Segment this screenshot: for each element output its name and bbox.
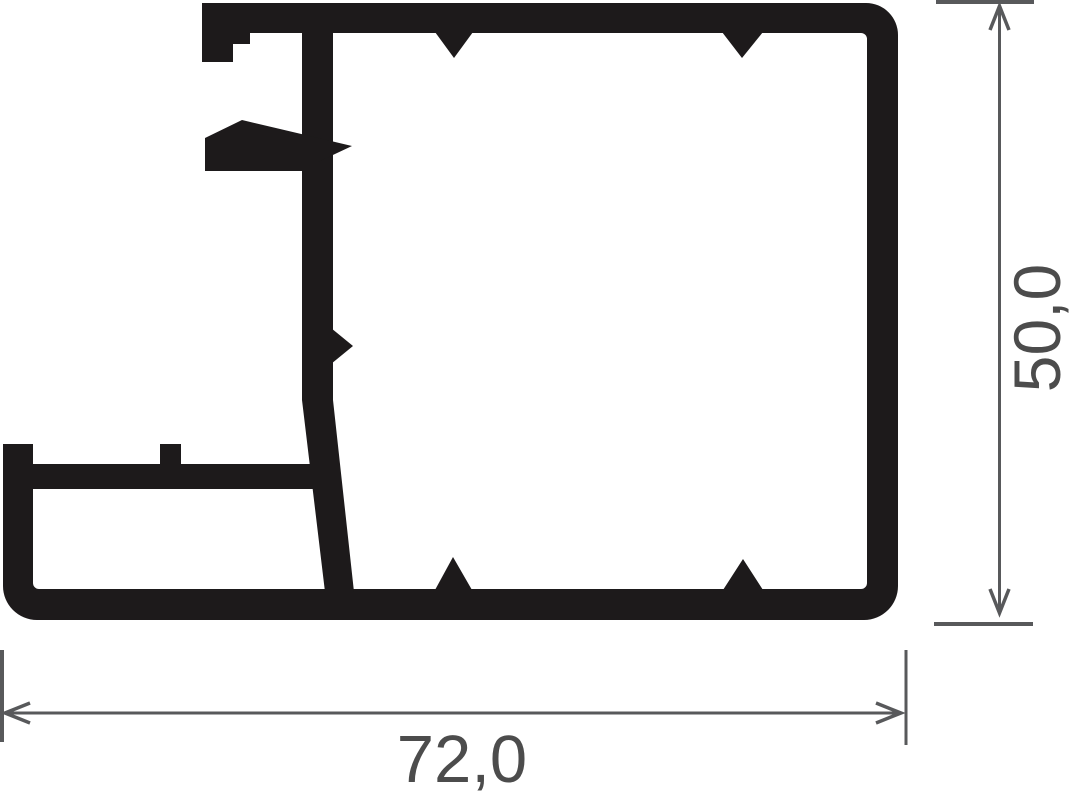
svg-text:50,0: 50,0 bbox=[1000, 264, 1074, 392]
svg-text:72,0: 72,0 bbox=[397, 722, 527, 797]
